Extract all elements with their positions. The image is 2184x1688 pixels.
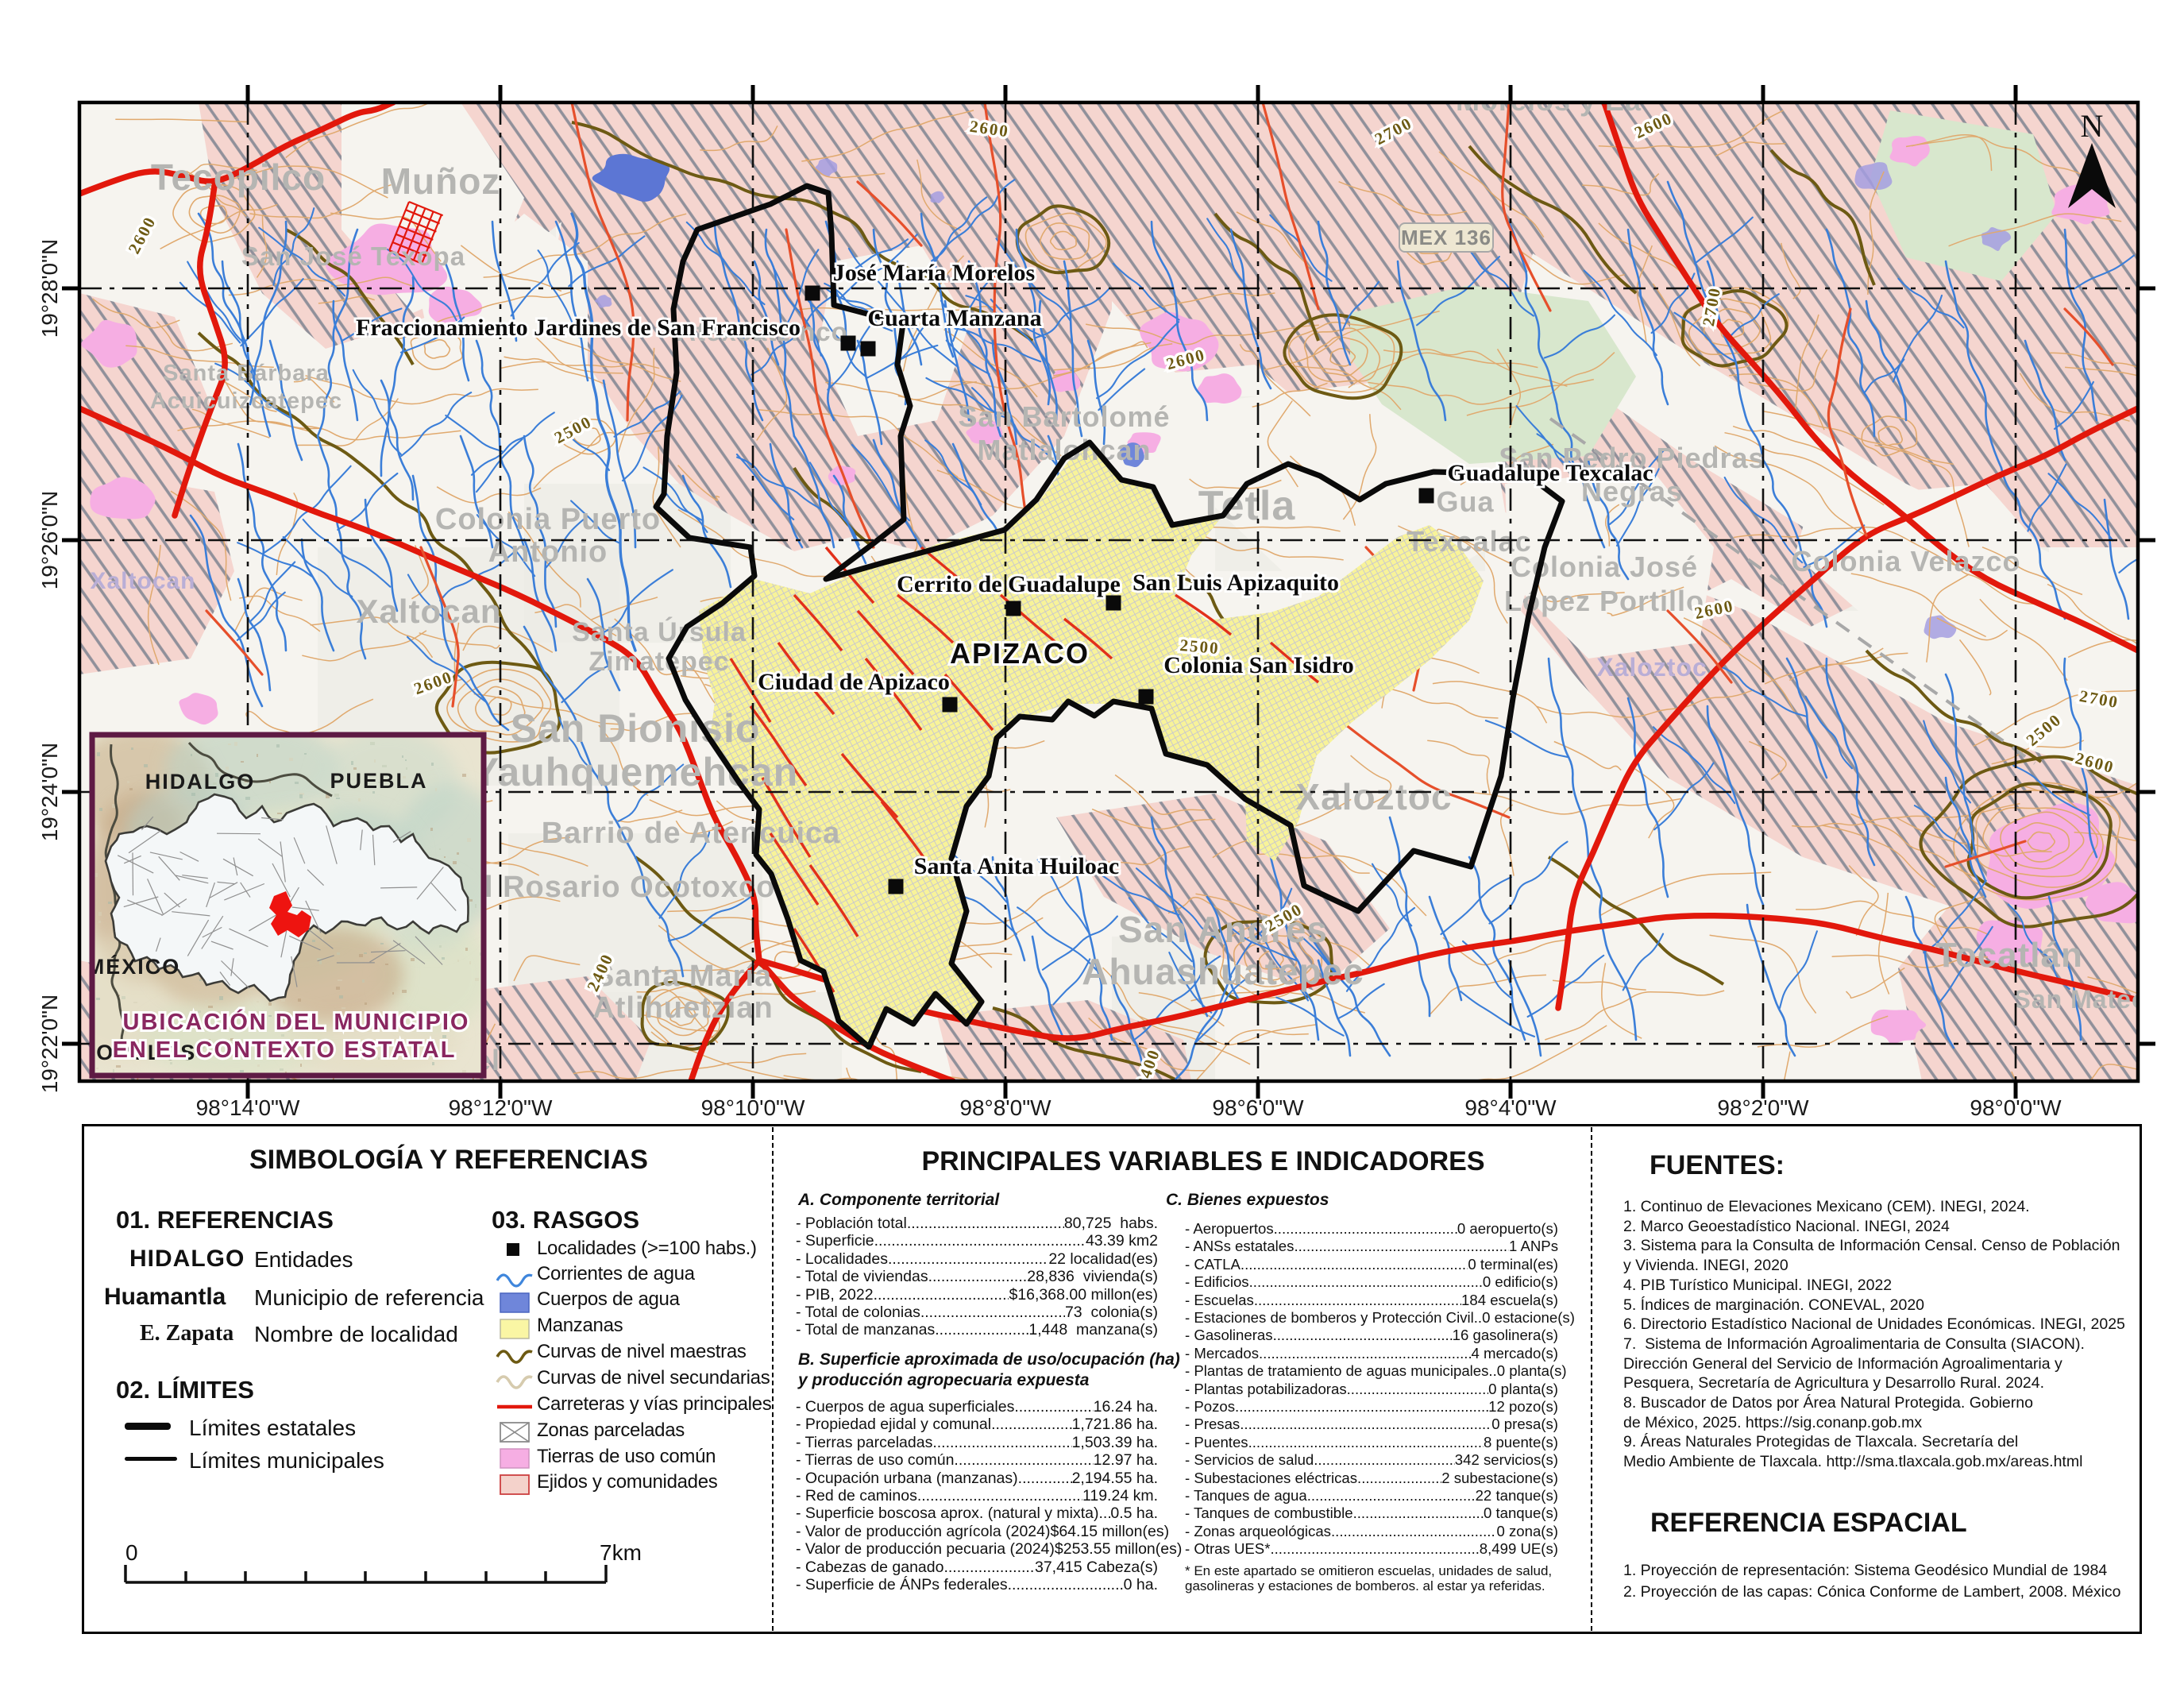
- svg-text:98°14'0"W: 98°14'0"W: [196, 1095, 300, 1120]
- svg-text:UBICACIÓN DEL MUNICIPIO: UBICACIÓN DEL MUNICIPIO: [123, 1008, 470, 1035]
- svg-text:San Bartolomé: San Bartolomé: [958, 400, 1170, 433]
- svg-text:San Luis Apizaquito: San Luis Apizaquito: [1133, 570, 1339, 596]
- svg-text:Colonia Velazco: Colonia Velazco: [1791, 545, 2020, 577]
- svg-text:Xaltocan: Xaltocan: [356, 593, 501, 630]
- svg-text:98°4'0"W: 98°4'0"W: [1464, 1095, 1557, 1120]
- svg-text:7km: 7km: [600, 1541, 642, 1565]
- svg-text:Antonio: Antonio: [488, 535, 608, 569]
- svg-text:19°26'0"N: 19°26'0"N: [37, 491, 62, 590]
- svg-text:Tecopilco: Tecopilco: [151, 156, 326, 198]
- svg-text:Guadalupe Texcalac: Guadalupe Texcalac: [1447, 460, 1653, 486]
- svg-text:Xaltocan: Xaltocan: [90, 568, 195, 594]
- svg-text:MÉXICO: MÉXICO: [87, 954, 181, 979]
- svg-text:98°10'0"W: 98°10'0"W: [701, 1095, 805, 1120]
- svg-text:El Rosario Ocotoxco: El Rosario Ocotoxco: [464, 871, 776, 904]
- svg-text:Zimatepec: Zimatepec: [588, 647, 729, 677]
- svg-text:San Mateo: San Mateo: [2013, 985, 2147, 1014]
- svg-text:98°0'0"W: 98°0'0"W: [1970, 1095, 2062, 1120]
- svg-text:José María Morelos: José María Morelos: [833, 260, 1035, 286]
- svg-text:HIDALGO: HIDALGO: [145, 770, 256, 794]
- svg-text:MEX 136: MEX 136: [1401, 226, 1491, 249]
- svg-text:Tetla: Tetla: [1198, 483, 1296, 529]
- svg-text:APIZACO: APIZACO: [950, 637, 1090, 670]
- svg-text:98°8'0"W: 98°8'0"W: [959, 1095, 1051, 1120]
- svg-text:Barrio de Atencuica: Barrio de Atencuica: [542, 817, 841, 850]
- svg-text:PUEBLA: PUEBLA: [330, 769, 427, 793]
- svg-text:San José Texopa: San José Texopa: [241, 241, 465, 271]
- svg-text:Santa Anita Huiloac: Santa Anita Huiloac: [914, 853, 1119, 879]
- svg-text:Cuarta Manzana: Cuarta Manzana: [867, 305, 1041, 331]
- svg-text:Xaloztoc: Xaloztoc: [1596, 653, 1707, 682]
- svg-text:Xaloztoc: Xaloztoc: [1295, 776, 1452, 817]
- svg-text:Santa María: Santa María: [594, 960, 772, 993]
- svg-text:Yauhquemehcan: Yauhquemehcan: [473, 750, 798, 794]
- svg-text:Tocatlán: Tocatlán: [1935, 936, 2083, 975]
- svg-text:Gua: Gua: [1436, 485, 1494, 518]
- svg-text:98°12'0"W: 98°12'0"W: [449, 1095, 553, 1120]
- svg-text:98°2'0"W: 98°2'0"W: [1717, 1095, 1809, 1120]
- svg-text:19°24'0"N: 19°24'0"N: [37, 743, 62, 842]
- svg-text:San Dionisio: San Dionisio: [511, 706, 761, 751]
- svg-text:19°22'0"N: 19°22'0"N: [37, 995, 62, 1094]
- svg-text:Colonia Puerto: Colonia Puerto: [435, 503, 661, 536]
- svg-text:Santa Bárbara: Santa Bárbara: [163, 361, 330, 386]
- svg-text:Colonia San Isidro: Colonia San Isidro: [1163, 652, 1354, 678]
- svg-text:Fraccionamiento Jardines de Sa: Fraccionamiento Jardines de San Francisc…: [356, 315, 801, 341]
- svg-text:Santa Úrsula: Santa Úrsula: [572, 617, 747, 647]
- svg-text:Cerrito de Guadalupe: Cerrito de Guadalupe: [897, 571, 1121, 597]
- svg-text:98°6'0"W: 98°6'0"W: [1212, 1095, 1304, 1120]
- svg-text:Atlihuetzian: Atlihuetzian: [592, 991, 773, 1025]
- svg-text:Acuicuizcatepec: Acuicuizcatepec: [150, 388, 342, 414]
- svg-text:Muñoz: Muñoz: [381, 160, 501, 202]
- svg-text:N: N: [2081, 108, 2104, 144]
- svg-text:Ahuashuatepec: Ahuashuatepec: [1082, 951, 1364, 992]
- svg-text:EN EL CONTEXTO ESTATAL: EN EL CONTEXTO ESTATAL: [113, 1037, 457, 1063]
- svg-text:0: 0: [125, 1541, 138, 1565]
- svg-text:19°28'0"N: 19°28'0"N: [37, 239, 62, 338]
- svg-text:Ciudad de Apizaco: Ciudad de Apizaco: [758, 669, 950, 695]
